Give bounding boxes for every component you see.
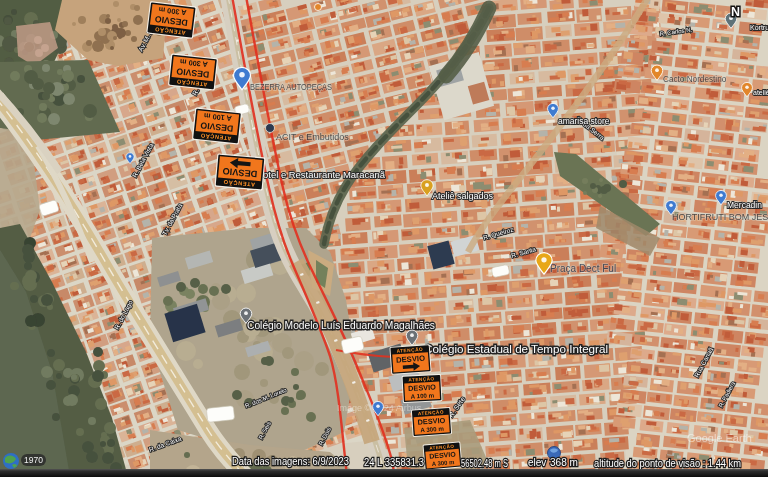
svg-text:HORTIFRUTI BOM JES: HORTIFRUTI BOM JES [672,212,768,222]
svg-text:ACIT e Embutidos: ACIT e Embutidos [276,132,349,142]
svg-text:altitude do ponto de visão : 1: altitude do ponto de visão : 1.44 km [594,458,741,469]
svg-text:Colégio Estadual de Tempo Inte: Colégio Estadual de Tempo Integral [424,343,608,355]
svg-text:otel e Restaurante Maracanã: otel e Restaurante Maracanã [263,169,386,180]
svg-text:A 100 m: A 100 m [410,391,434,399]
svg-text:ateliê: ateliê [753,89,768,96]
svg-text:elev: elev [528,457,546,468]
svg-text:Data das imagens: 6/9/2023: Data das imagens: 6/9/2023 [232,456,349,467]
svg-text:56502.48 m S: 56502.48 m S [461,458,508,469]
svg-text:Google Earth: Google Earth [687,432,752,444]
svg-text:24 L 335831.3: 24 L 335831.3 [364,457,424,468]
svg-text:Ateliê salgados: Ateliê salgados [432,191,494,201]
svg-text:N: N [731,5,740,19]
svg-text:Kortru: Kortru [750,24,768,31]
svg-text:BEZERRA AUTOPEÇAS: BEZERRA AUTOPEÇAS [250,83,332,92]
svg-text:Colégio Modelo Luís Eduardo Ma: Colégio Modelo Luís Eduardo Magalhães [247,319,435,331]
svg-text:Cacto Nordestino: Cacto Nordestino [663,75,727,84]
svg-text:Praça Dect Ful: Praça Dect Ful [550,263,616,274]
svg-text:368 m: 368 m [550,457,578,468]
svg-text:1970: 1970 [24,455,43,465]
svg-text:amarisa store: amarisa store [558,116,610,126]
svg-text:Mercadin: Mercadin [727,200,762,210]
